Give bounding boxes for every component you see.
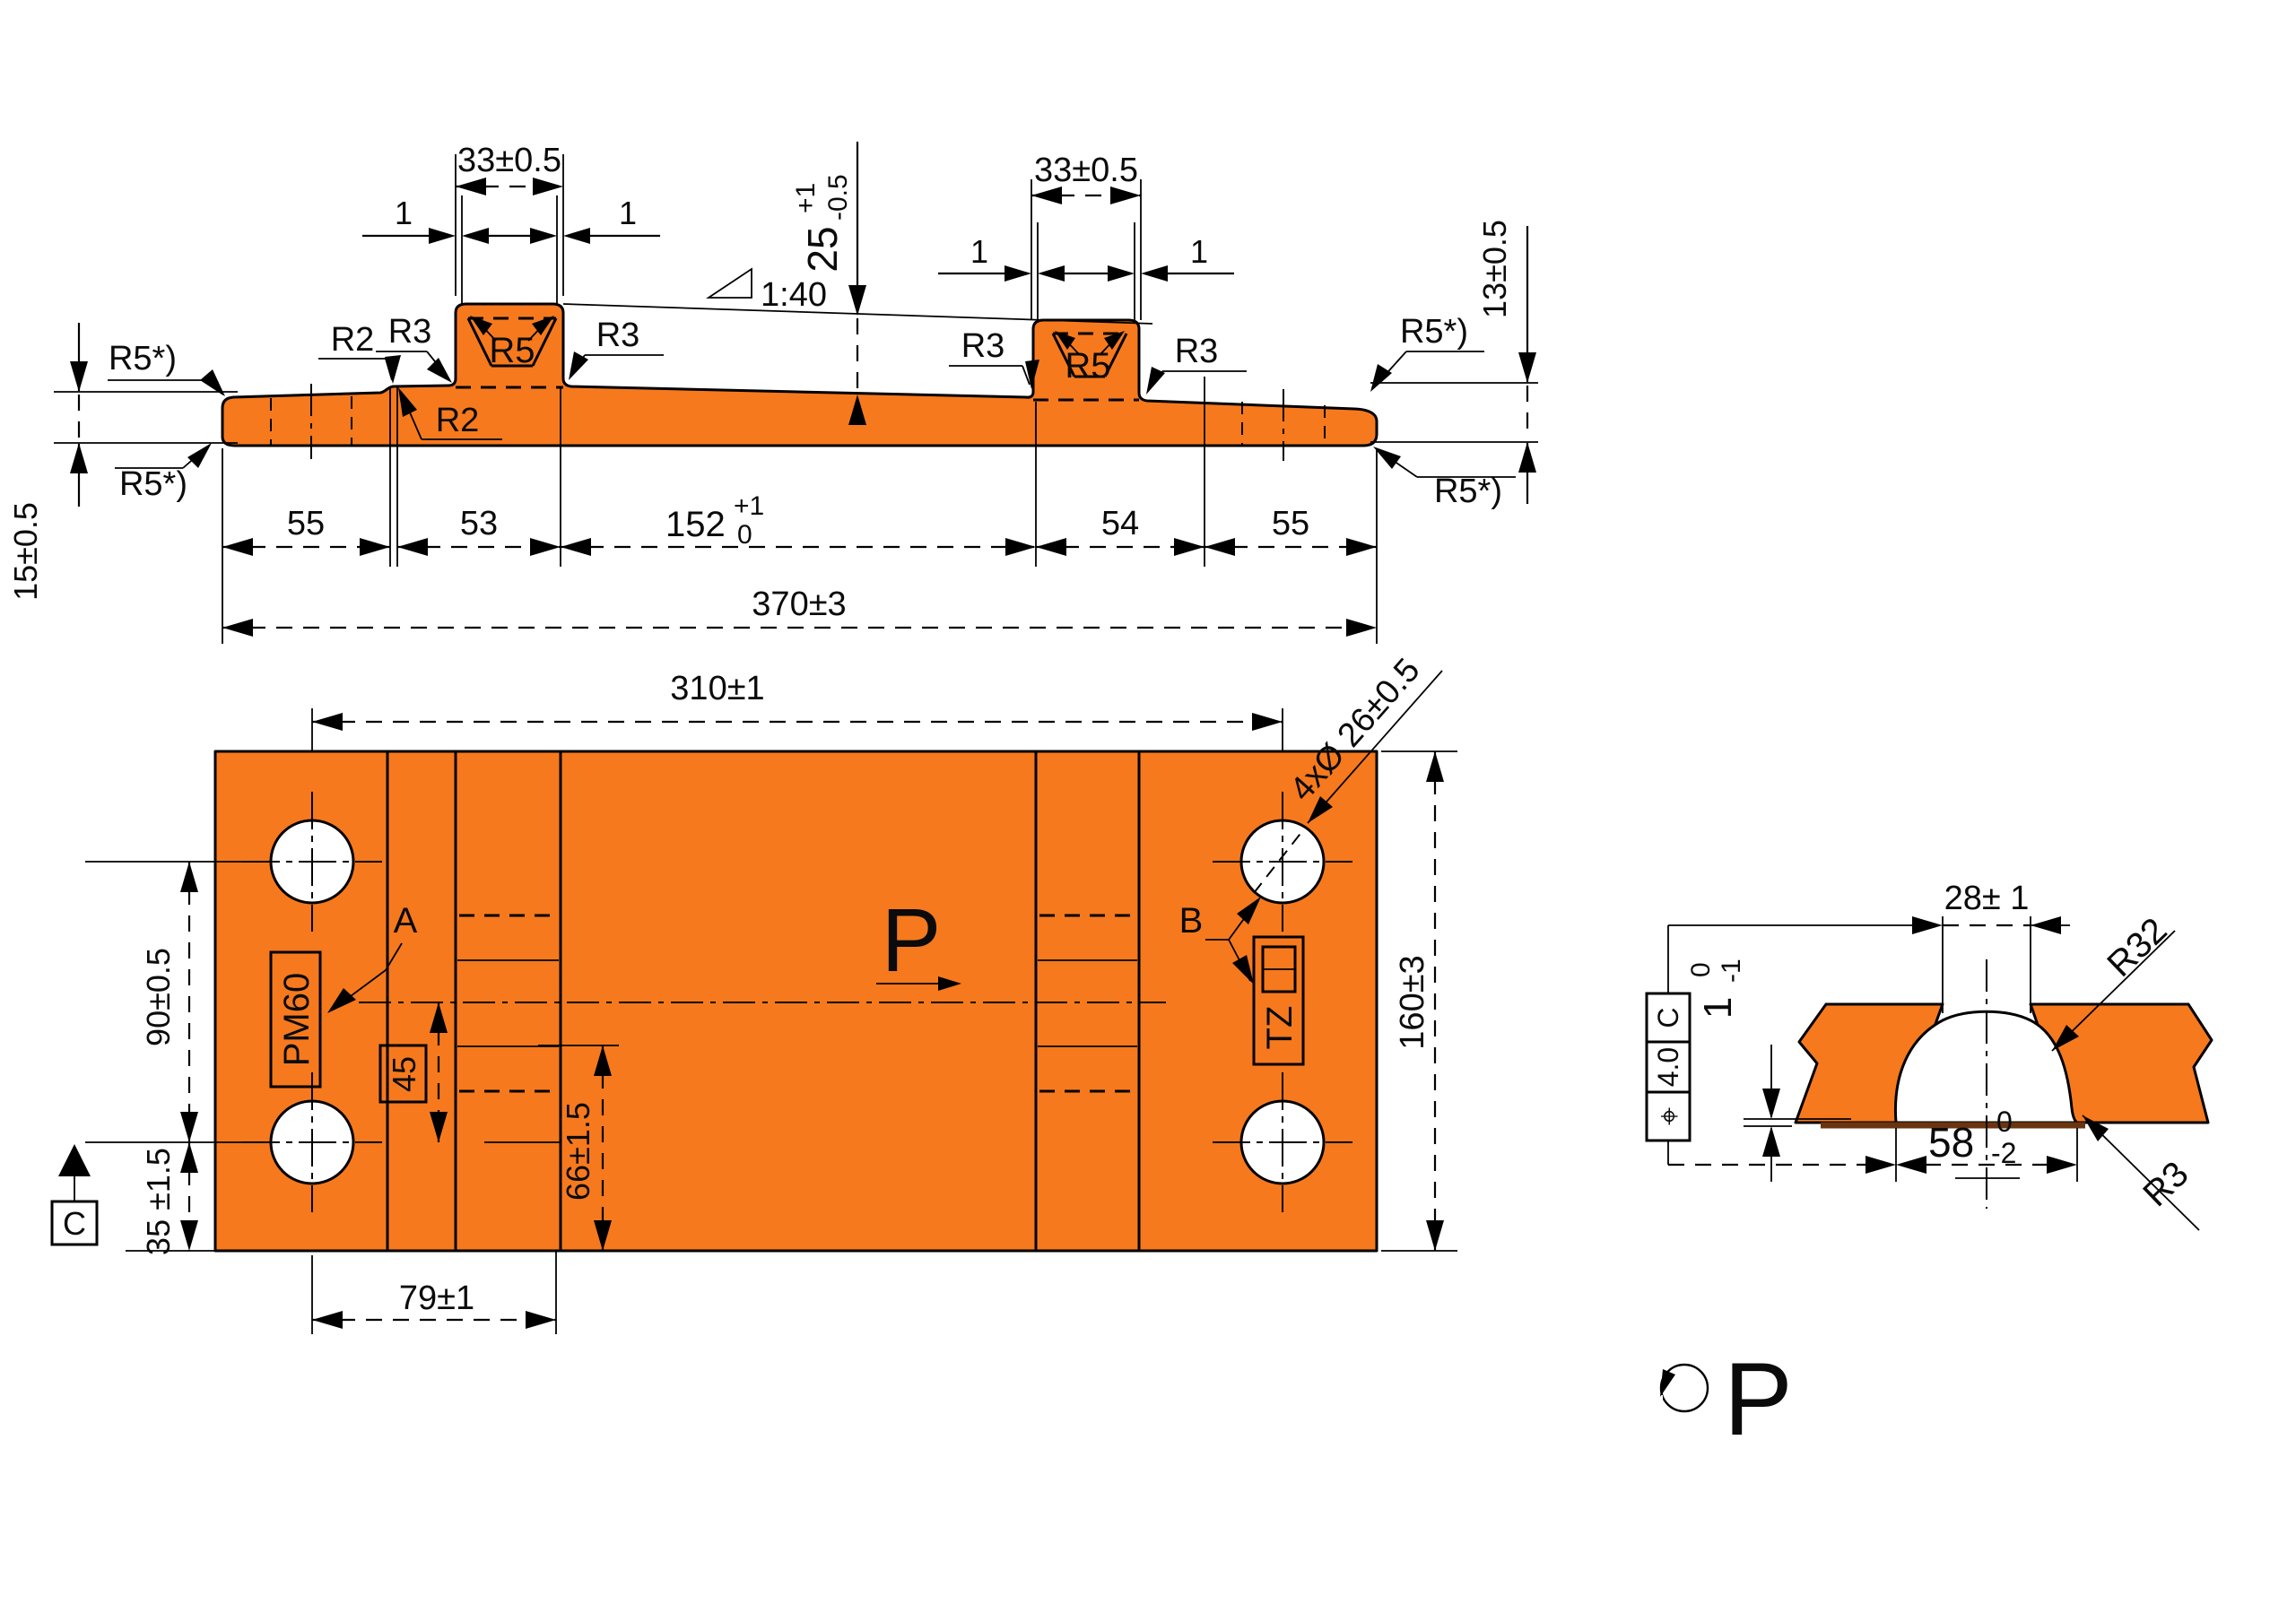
dim-tol-minus: 0 xyxy=(737,520,752,550)
radius-label: R5*) xyxy=(1434,473,1502,510)
radius-label: R5*) xyxy=(119,465,187,503)
plate xyxy=(215,751,1377,1251)
datum-triangle-icon xyxy=(58,1144,91,1176)
dim-tol-plus: +1 xyxy=(791,183,821,213)
dim-text: 33±0.5 xyxy=(457,142,561,179)
dim-hole-spacing-x: 310±1 xyxy=(312,670,1283,751)
dim-total-length: 370±3 xyxy=(222,585,1377,637)
stamp-text: TZ xyxy=(1260,1006,1300,1050)
radius-label: R3 xyxy=(961,327,1005,365)
dim-text: 15±0.5 xyxy=(7,502,44,601)
drawing-canvas: 1:40 33±0.5 xyxy=(0,0,2296,1622)
dim-text: 35 ±1.5 xyxy=(140,1148,177,1255)
dim-tol-minus: -2 xyxy=(1991,1137,2016,1169)
detail-view: 28± 1 C 4.0 ⌖ 58 0 -2 xyxy=(1647,880,2212,1457)
radius-label: R32 xyxy=(2100,910,2174,984)
dim-text: 55 xyxy=(1272,505,1309,542)
dim-text: 310±1 xyxy=(670,670,764,707)
radius-label: R5 xyxy=(489,331,535,370)
radius-label: R3 xyxy=(2135,1154,2196,1214)
dim-text: 160±3 xyxy=(1394,955,1431,1049)
radius-label: R2 xyxy=(436,402,480,439)
dim-tol-plus: 0 xyxy=(1996,1106,2013,1138)
radius-label: R5 xyxy=(1065,346,1110,386)
section-letter: P xyxy=(882,890,942,991)
plan-view: 310±1 160±3 90±0.5 35 ±1.5 xyxy=(52,652,1457,1334)
radius-label: R5*) xyxy=(1400,313,1468,351)
dim-text: 90±0.5 xyxy=(140,948,177,1046)
dim-text: 79±1 xyxy=(399,1279,474,1317)
stamp-text: PM60 xyxy=(277,973,317,1067)
dim-text: 53 xyxy=(460,505,498,542)
side-view: 1:40 33±0.5 xyxy=(7,142,1538,644)
dim-text: 152 xyxy=(665,505,726,544)
dim-hole-to-edge: 79±1 xyxy=(312,1251,556,1334)
dim-text: 54 xyxy=(1101,505,1139,542)
dim-text: 13±0.5 xyxy=(1476,220,1513,318)
dim-text: 1 xyxy=(970,233,988,270)
dim-tol-plus: 0 xyxy=(1686,962,1716,977)
datum-letter: C xyxy=(63,1205,86,1242)
label-a: A xyxy=(394,901,418,941)
slope-ratio-label: 1:40 xyxy=(761,276,827,314)
dim-text: 370±3 xyxy=(752,585,846,623)
dim-text: 28± 1 xyxy=(1944,880,2030,917)
dim-text: 55 xyxy=(287,505,325,542)
dim-lengths-row: 55 53 152 +1 0 54 55 xyxy=(222,491,1377,556)
dim-text: 1 xyxy=(619,195,637,231)
dim-boss-width-left: 33±0.5 xyxy=(456,142,563,195)
technical-drawing: 1:40 33±0.5 xyxy=(0,0,2296,1622)
detail-view-title: P xyxy=(1648,1342,1793,1457)
radius-label: R3 xyxy=(388,313,432,351)
dim-tol-minus: -0.5 xyxy=(823,174,853,221)
dim-offsets-left: 1 1 xyxy=(362,195,660,244)
datum-c: C xyxy=(52,1144,97,1245)
radius-label: R3 xyxy=(1175,333,1219,370)
slope-triangle-icon xyxy=(709,269,752,298)
dim-text: 1 xyxy=(1190,233,1208,270)
boxed-dim-text: 45 xyxy=(386,1056,422,1092)
dim-tol-minus: -1 xyxy=(1717,958,1746,983)
dim-tol-plus: +1 xyxy=(734,491,764,521)
dim-offsets-right: 1 1 xyxy=(938,233,1234,282)
dim-boss-width-right: 33±0.5 xyxy=(1031,152,1141,204)
radius-label: R2 xyxy=(331,321,375,359)
dim-text: 1 xyxy=(395,195,413,231)
dim-plate-width: 160±3 xyxy=(1381,751,1457,1251)
dim-text: 33±0.5 xyxy=(1034,152,1138,189)
radius-label: R5*) xyxy=(109,340,177,377)
dim-text: 25 xyxy=(799,226,846,272)
fcf-value: 4.0 xyxy=(1652,1047,1684,1087)
dim-text: 1 xyxy=(1696,997,1740,1019)
dim-text: 66±1.5 xyxy=(560,1102,596,1201)
detail-letter: P xyxy=(1724,1342,1793,1457)
label-b: B xyxy=(1179,901,1204,941)
fcf-position-icon: ⌖ xyxy=(1650,1107,1687,1125)
fcf-datum: C xyxy=(1652,1007,1684,1028)
radius-label: R3 xyxy=(596,317,640,354)
dim-text: 58 xyxy=(1928,1119,1974,1166)
dim-opening-width: 28± 1 xyxy=(1912,880,2070,1013)
